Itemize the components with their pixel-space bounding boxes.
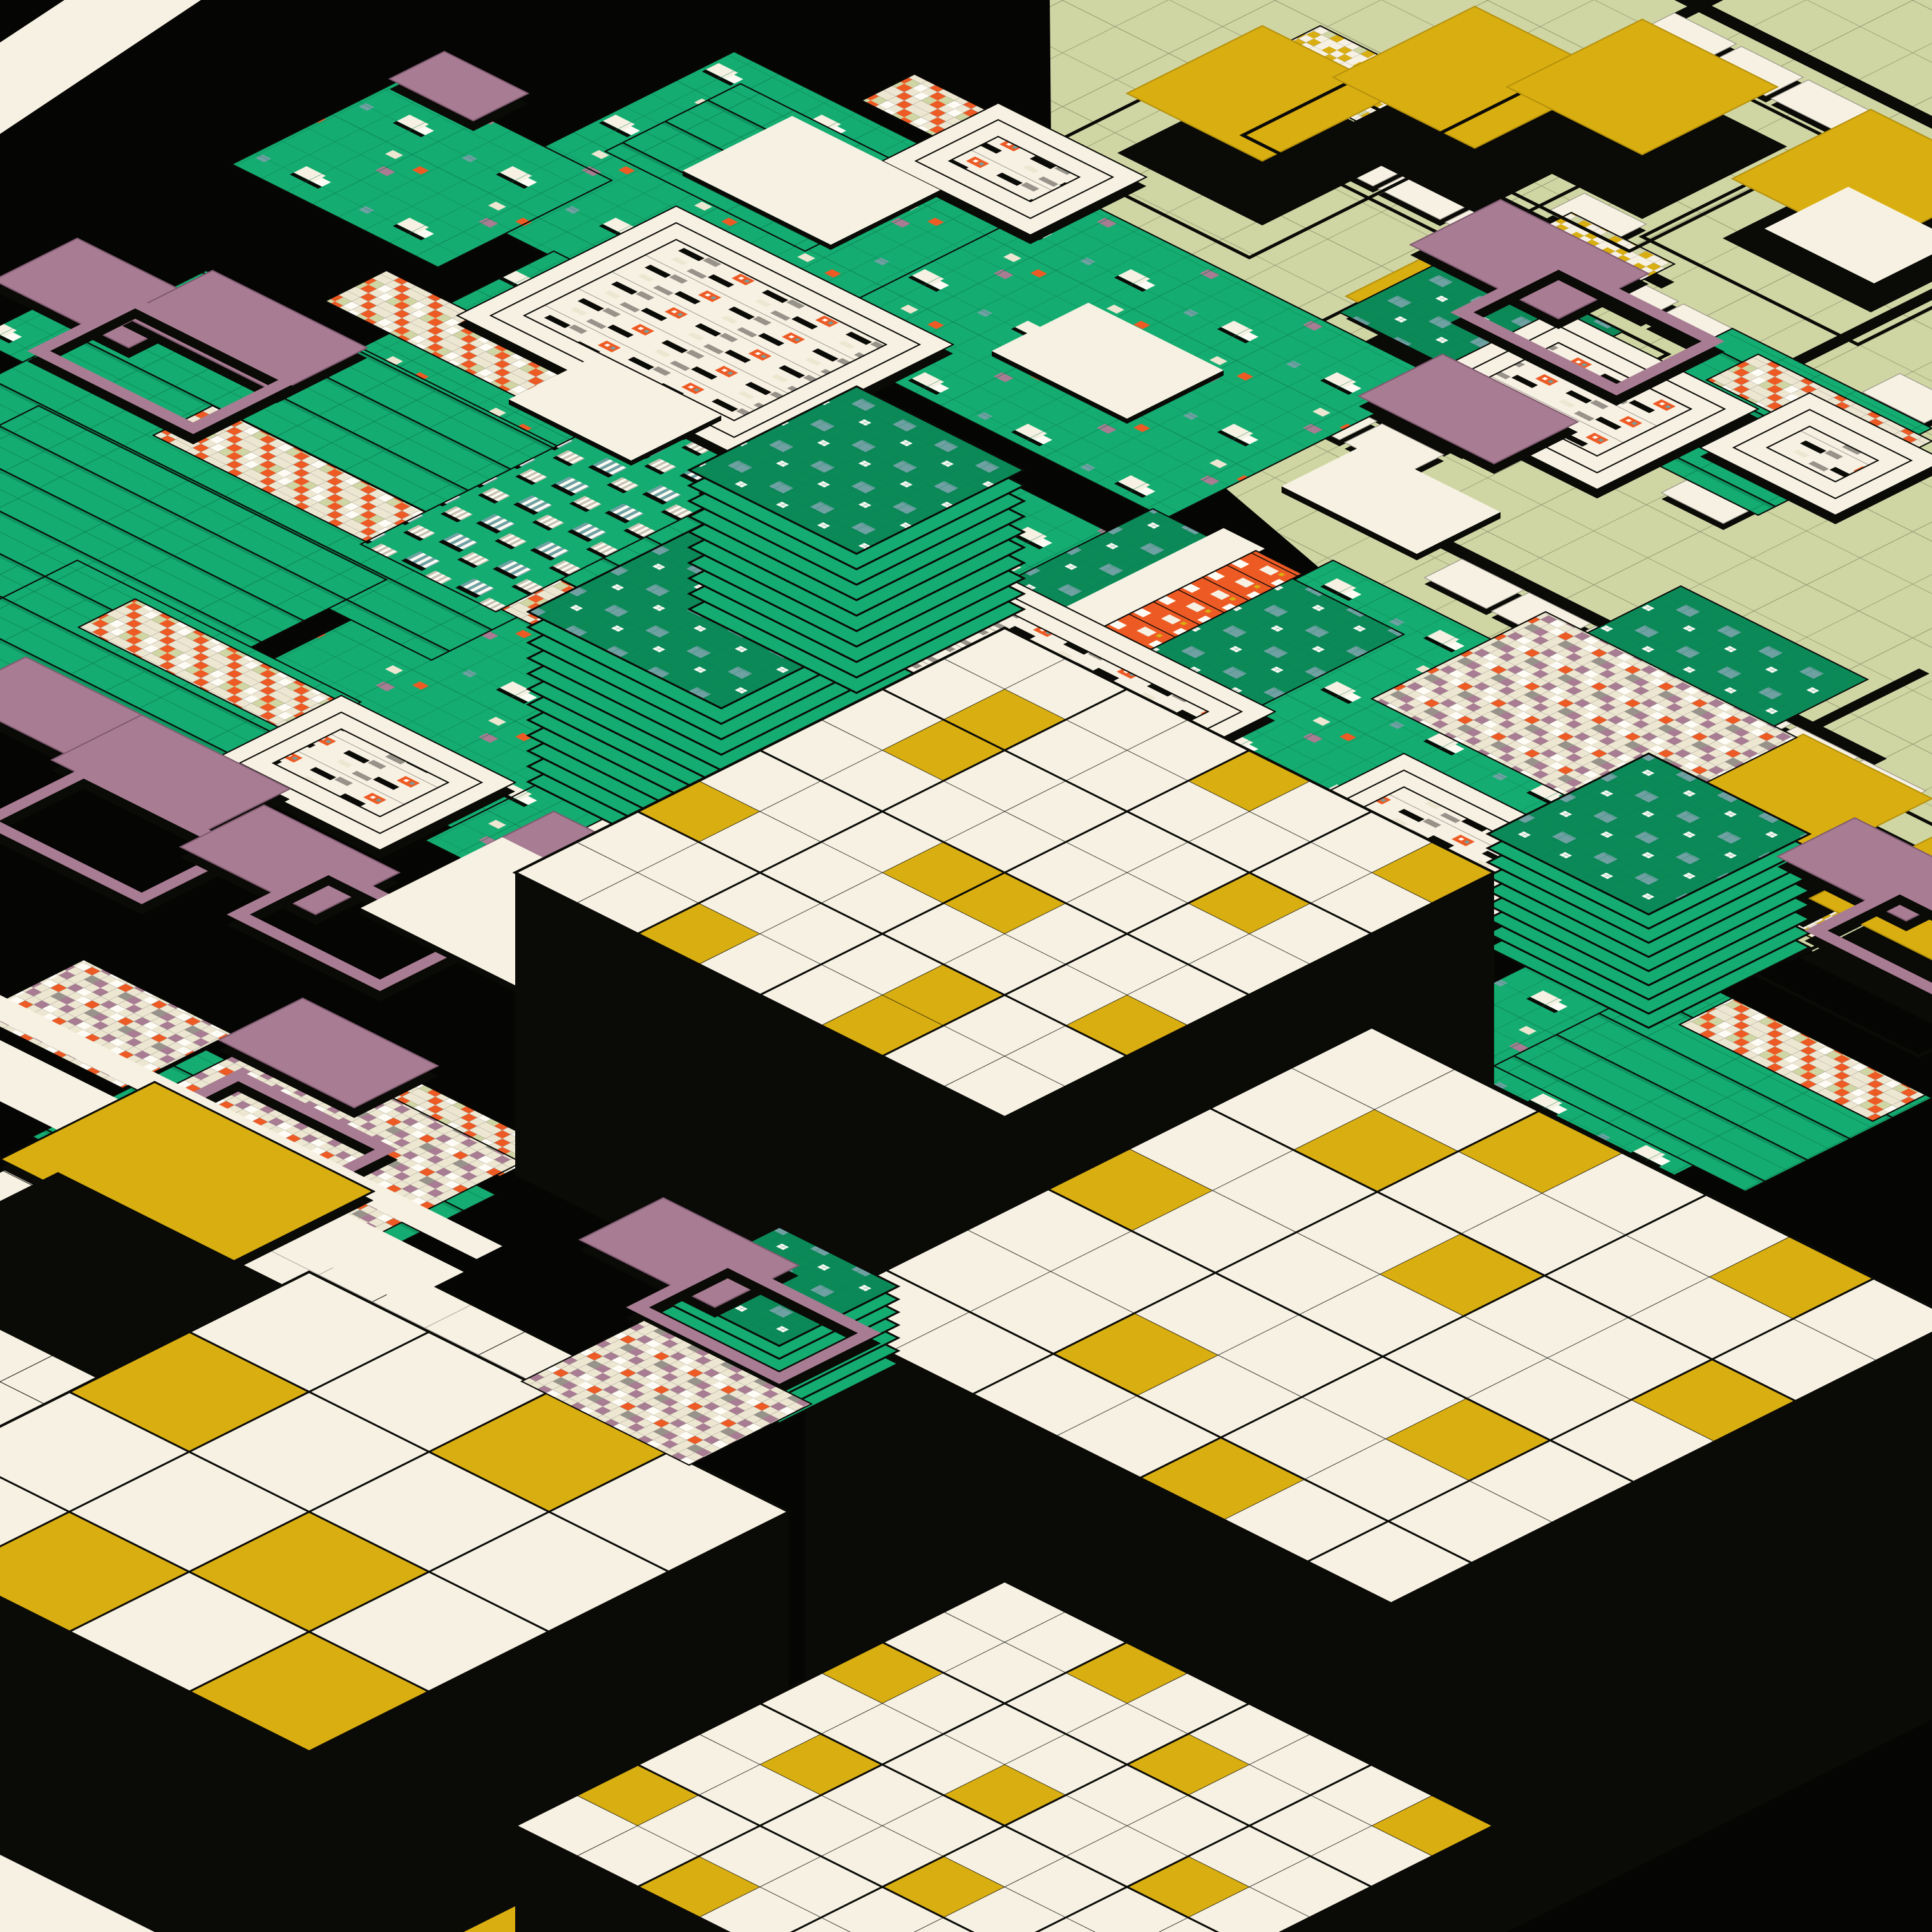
isometric-generative-cityscape (0, 0, 1932, 1932)
